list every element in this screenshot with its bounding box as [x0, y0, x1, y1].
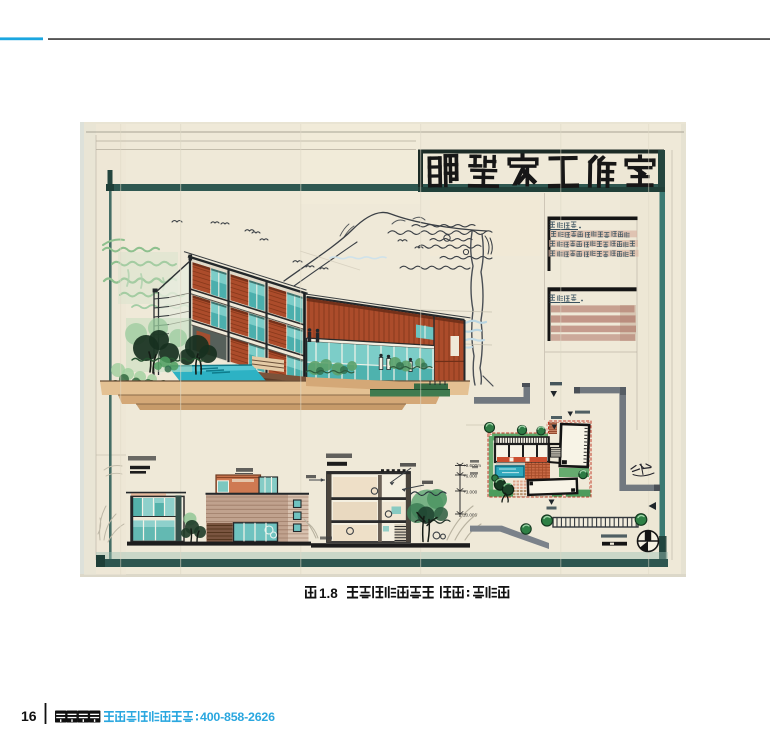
svg-text:16: 16: [21, 708, 37, 724]
svg-text:1.8: 1.8: [319, 586, 338, 601]
svg-text:+3.000: +3.000: [463, 489, 478, 494]
svg-text:400-858-2626: 400-858-2626: [200, 710, 275, 724]
